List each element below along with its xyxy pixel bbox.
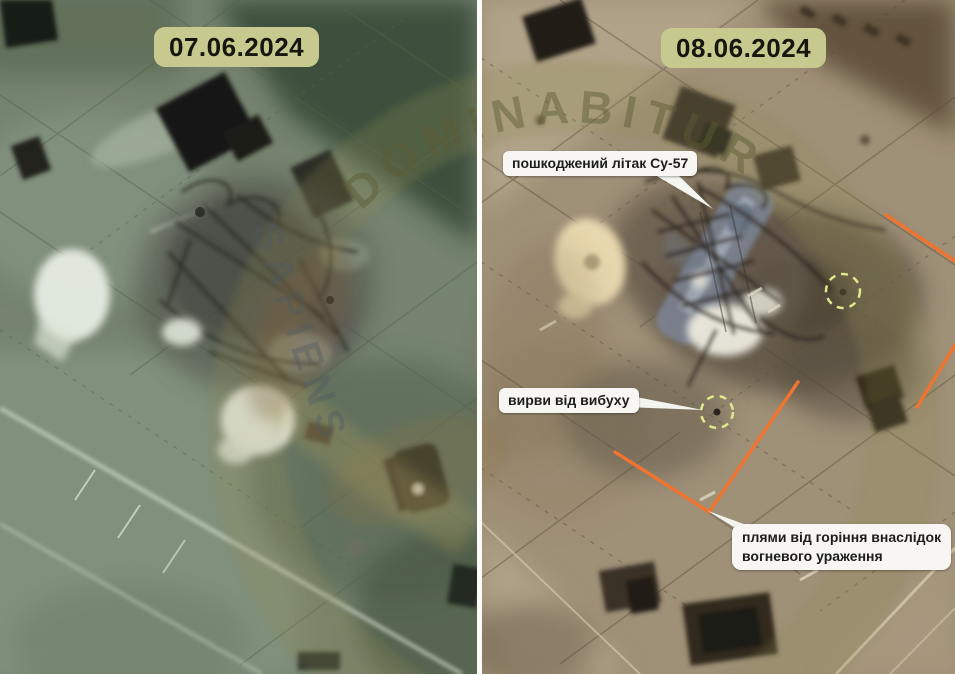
panel-divider: [477, 0, 482, 674]
satellite-imagery: DOMINABITUR SAPIENS: [0, 0, 955, 674]
annotation-burn-stains: плями від горіння внаслідок вогневого ур…: [732, 524, 951, 570]
annotation-burn-stains-line1: плями від горіння внаслідок: [742, 528, 941, 547]
annotation-damaged-aircraft: пошкоджений літак Су-57: [503, 151, 697, 176]
satellite-comparison: DOMINABITUR SAPIENS 07.06.2024 08.06.202…: [0, 0, 955, 674]
date-badge-before: 07.06.2024: [154, 27, 319, 67]
annotation-craters: вирви від вибуху: [499, 388, 639, 413]
date-badge-after: 08.06.2024: [661, 28, 826, 68]
annotation-burn-stains-line2: вогневого ураження: [742, 547, 941, 566]
